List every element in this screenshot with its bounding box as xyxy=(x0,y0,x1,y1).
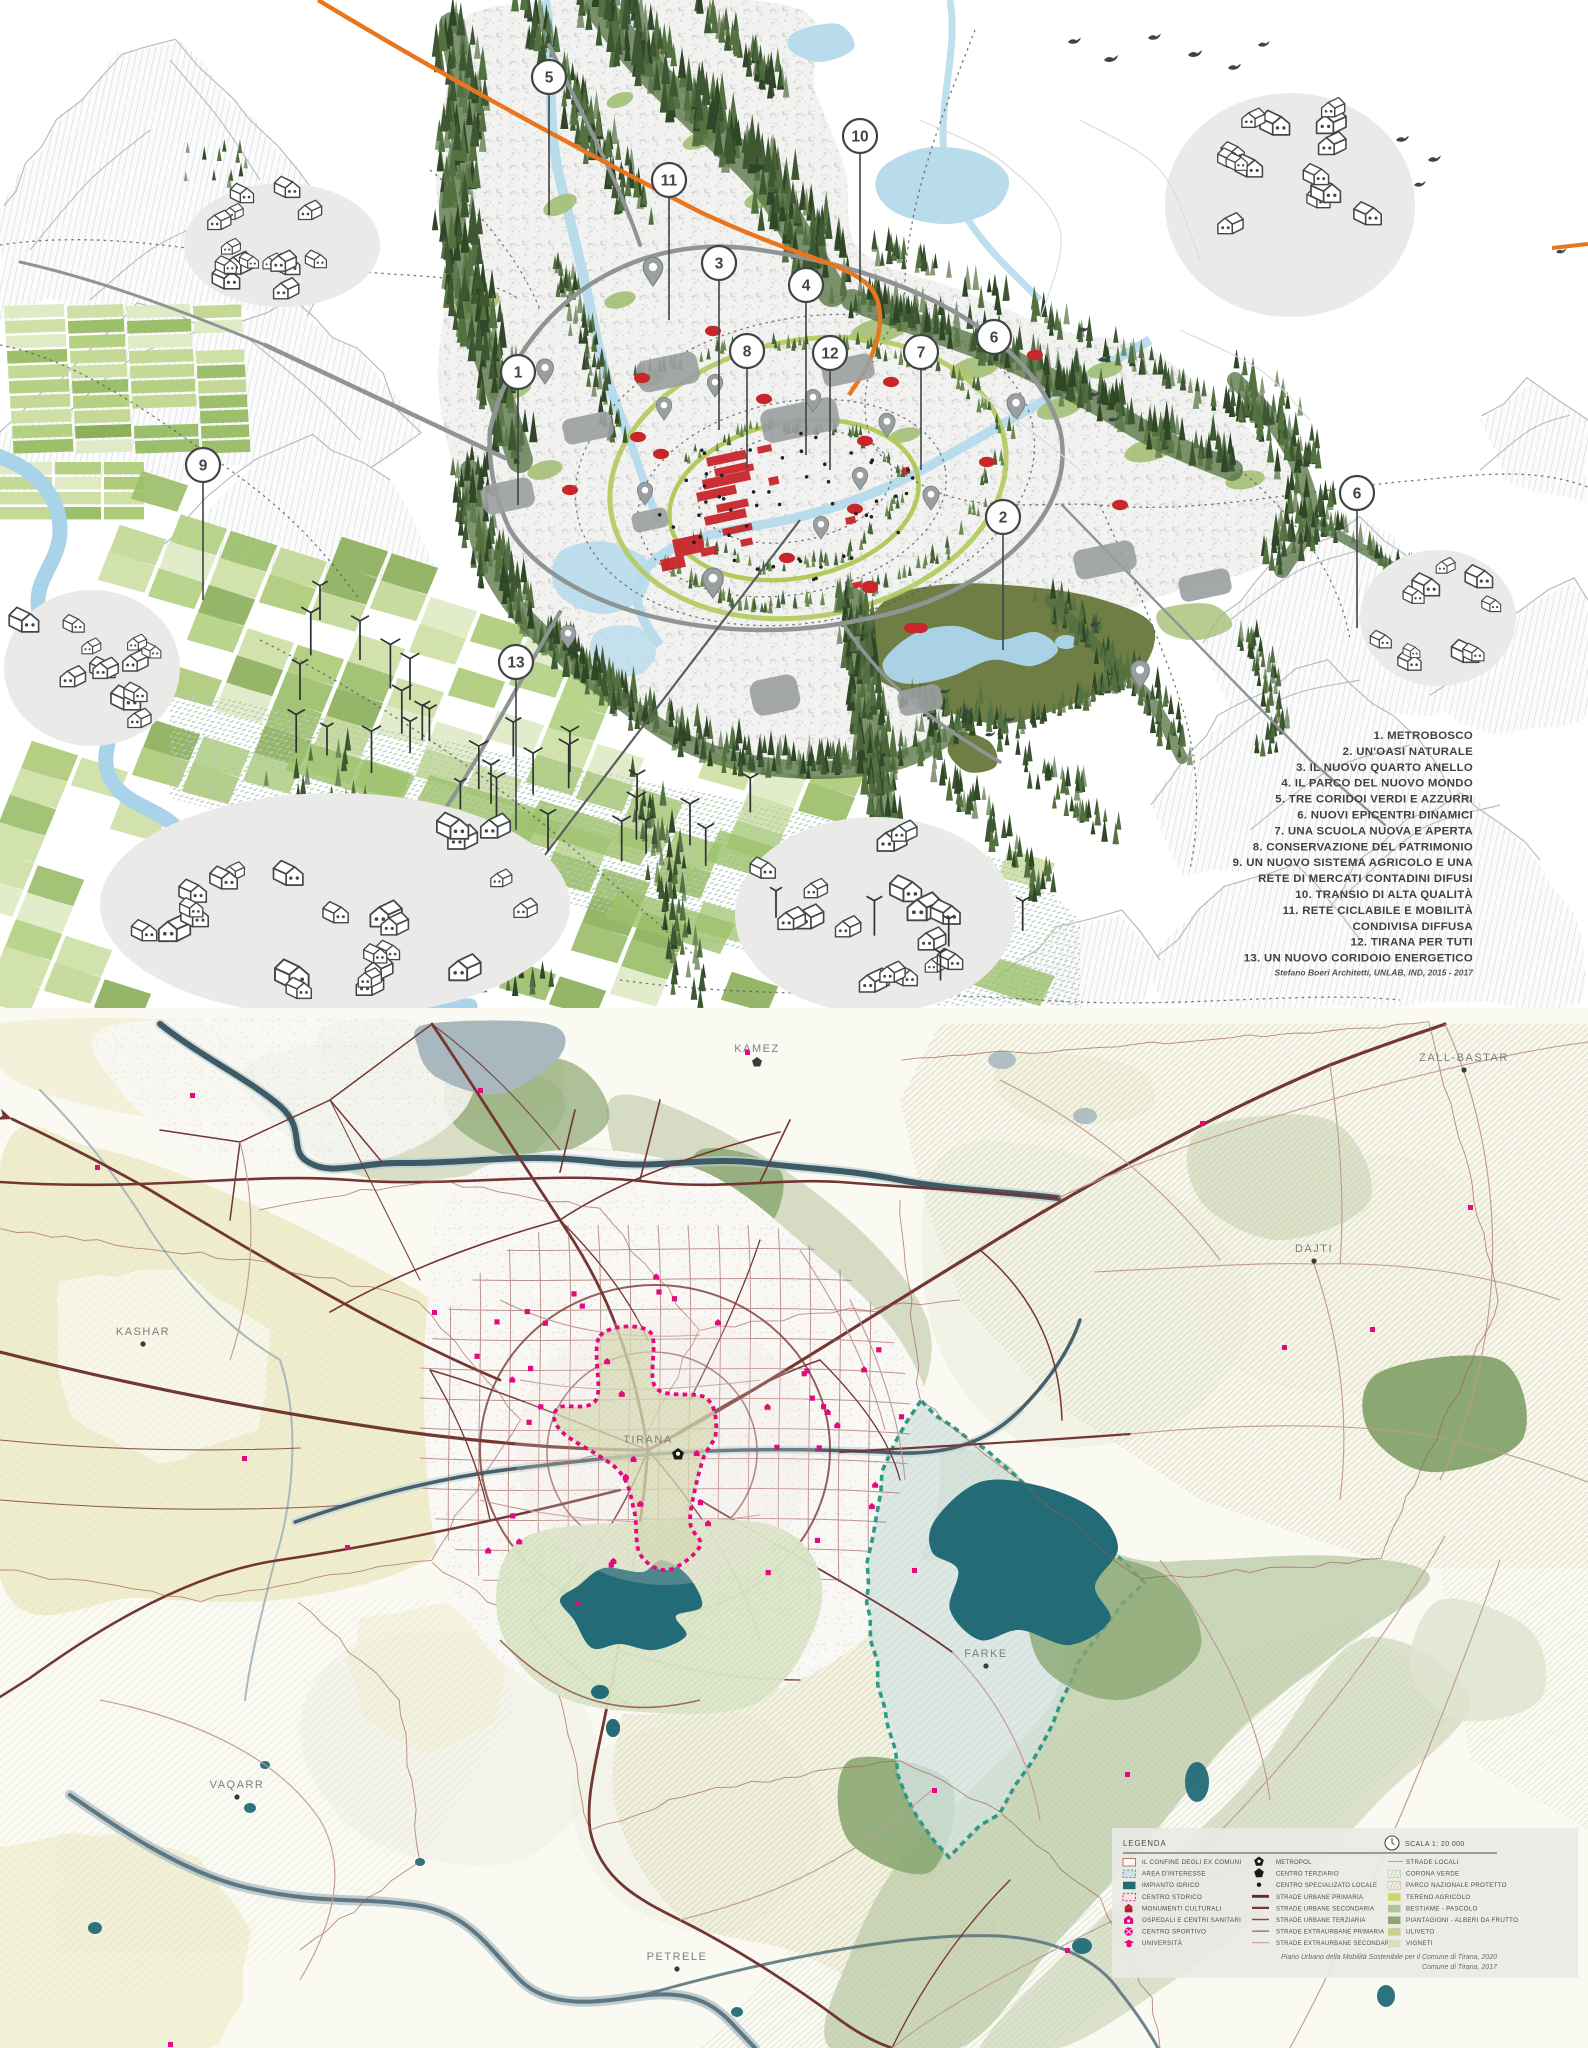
svg-text:AREA D'INTERESSE: AREA D'INTERESSE xyxy=(1142,1871,1206,1878)
svg-text:8: 8 xyxy=(743,344,752,361)
svg-text:STRADE EXTRAURBANE SECONDARIA: STRADE EXTRAURBANE SECONDARIA xyxy=(1276,1941,1396,1947)
svg-text:MONUMENTI CULTURALI: MONUMENTI CULTURALI xyxy=(1142,1905,1222,1912)
svg-text:PARCO NAZIONALE PROTETTO: PARCO NAZIONALE PROTETTO xyxy=(1406,1882,1507,1889)
svg-text:1: 1 xyxy=(514,365,523,382)
svg-text:12: 12 xyxy=(821,346,838,363)
svg-text:13: 13 xyxy=(507,655,525,672)
svg-text:STRADE URBANE SECONDARIA: STRADE URBANE SECONDARIA xyxy=(1276,1906,1374,1912)
svg-text:6: 6 xyxy=(990,330,999,347)
svg-text:3: 3 xyxy=(715,256,724,273)
svg-text:1. METROBOSCO: 1. METROBOSCO xyxy=(1374,730,1473,742)
svg-text:11. RETE CICLABILE E MOBILITÀ: 11. RETE CICLABILE E MOBILITÀ xyxy=(1283,904,1473,917)
svg-text:CONDIVISA DIFFUSA: CONDIVISA DIFFUSA xyxy=(1353,921,1474,933)
svg-text:11: 11 xyxy=(661,173,678,190)
svg-text:VAQARR: VAQARR xyxy=(210,1779,265,1791)
svg-text:ULIVETO: ULIVETO xyxy=(1406,1929,1434,1936)
svg-text:OSPEDALI E CENTRI SANITARI: OSPEDALI E CENTRI SANITARI xyxy=(1142,1917,1241,1924)
svg-text:10: 10 xyxy=(851,129,868,146)
svg-text:CENTRO SPECIALIZATO LOCALE: CENTRO SPECIALIZATO LOCALE xyxy=(1276,1883,1377,1889)
svg-text:6. NUOVI EPICENTRI DINAMICI: 6. NUOVI EPICENTRI DINAMICI xyxy=(1297,810,1473,822)
svg-text:STRADE URBANE TERZIARIA: STRADE URBANE TERZIARIA xyxy=(1276,1918,1366,1924)
svg-text:FARKE: FARKE xyxy=(964,1648,1008,1660)
svg-text:Comune di Tirana, 2017: Comune di Tirana, 2017 xyxy=(1422,1964,1498,1971)
svg-text:12. TIRANA PER TUTI: 12. TIRANA PER TUTI xyxy=(1351,937,1473,949)
svg-text:METROPOL: METROPOL xyxy=(1276,1860,1312,1866)
svg-text:CORONA VERDE: CORONA VERDE xyxy=(1406,1871,1459,1878)
svg-text:13. UN NUOVO CORIDOIO ENERGET: 13. UN NUOVO CORIDOIO ENERGETICO xyxy=(1244,953,1473,965)
svg-text:SCALA 1: 20 000: SCALA 1: 20 000 xyxy=(1405,1841,1465,1848)
svg-text:RETE DI MERCATI CONTADINI DIFU: RETE DI MERCATI CONTADINI DIFUSI xyxy=(1258,873,1473,885)
svg-text:Stefano Boeri Architetti, UNLA: Stefano Boeri Architetti, UNLAB, IND, 20… xyxy=(1274,968,1474,978)
svg-text:5: 5 xyxy=(545,70,554,87)
svg-text:BESTIAME - PASCOLO: BESTIAME - PASCOLO xyxy=(1406,1905,1478,1912)
svg-text:LEGENDA: LEGENDA xyxy=(1123,1839,1167,1848)
svg-text:4. IL PARCO DEL NUOVO MONDO: 4. IL PARCO DEL NUOVO MONDO xyxy=(1281,778,1473,790)
svg-text:PETRELE: PETRELE xyxy=(647,1951,708,1963)
svg-text:UNIVERSITÀ: UNIVERSITÀ xyxy=(1142,1940,1183,1947)
svg-text:TERENO AGRICOLO: TERENO AGRICOLO xyxy=(1406,1894,1470,1901)
svg-text:STRADE EXTRAURBANE PRIMARIA: STRADE EXTRAURBANE PRIMARIA xyxy=(1276,1930,1384,1936)
svg-text:2: 2 xyxy=(999,510,1008,527)
svg-text:CENTRO TERZIARIO: CENTRO TERZIARIO xyxy=(1276,1872,1339,1878)
svg-text:Piano Urbano della Mobilità So: Piano Urbano della Mobilità Sostenibile … xyxy=(1281,1954,1497,1961)
svg-text:7: 7 xyxy=(917,345,926,362)
svg-text:ZALL-BASTAR: ZALL-BASTAR xyxy=(1419,1052,1509,1064)
svg-text:KASHAR: KASHAR xyxy=(116,1326,170,1338)
svg-text:5. TRE CORIDOI VERDI E AZZUR: 5. TRE CORIDOI VERDI E AZZURRI xyxy=(1275,794,1473,806)
svg-text:4: 4 xyxy=(802,278,811,295)
svg-text:9. UN NUOVO SISTEMA AGRICOLO: 9. UN NUOVO SISTEMA AGRICOLO E UNA xyxy=(1233,857,1473,869)
svg-text:PIANTAGIONI - ALBERI DA FRUTTO: PIANTAGIONI - ALBERI DA FRUTTO xyxy=(1406,1917,1518,1924)
svg-text:STRADE LOCALI: STRADE LOCALI xyxy=(1406,1859,1459,1866)
svg-text:TIRANA: TIRANA xyxy=(623,1434,672,1446)
svg-text:IMPIANTO IDRICO: IMPIANTO IDRICO xyxy=(1142,1882,1200,1889)
svg-text:9: 9 xyxy=(199,458,208,475)
svg-text:8. CONSERVAZIONE DEL PATRIMO: 8. CONSERVAZIONE DEL PATRIMONIO xyxy=(1253,841,1473,853)
svg-text:3. IL NUOVO QUARTO ANELLO: 3. IL NUOVO QUARTO ANELLO xyxy=(1296,762,1473,774)
svg-text:2. UN'OASI NATURALE: 2. UN'OASI NATURALE xyxy=(1343,746,1473,758)
svg-text:6: 6 xyxy=(1353,486,1362,503)
svg-text:CENTRO SPORTIVO: CENTRO SPORTIVO xyxy=(1142,1929,1206,1936)
svg-text:7. UNA SCUOLA NUOVA E APERTA: 7. UNA SCUOLA NUOVA E APERTA xyxy=(1274,825,1473,837)
svg-text:CENTRO STORICO: CENTRO STORICO xyxy=(1142,1894,1202,1901)
svg-text:DAJTI: DAJTI xyxy=(1295,1243,1333,1255)
svg-text:VIGNETI: VIGNETI xyxy=(1406,1940,1433,1947)
svg-text:10. TRANSIO DI ALTA QUALITÀ: 10. TRANSIO DI ALTA QUALITÀ xyxy=(1295,888,1473,901)
svg-text:IL CONFINE DEGLI EX COMUNI: IL CONFINE DEGLI EX COMUNI xyxy=(1142,1859,1241,1866)
svg-text:KAMEZ: KAMEZ xyxy=(734,1043,779,1055)
svg-text:STRADE URBANE PRIMARIA: STRADE URBANE PRIMARIA xyxy=(1276,1895,1363,1901)
